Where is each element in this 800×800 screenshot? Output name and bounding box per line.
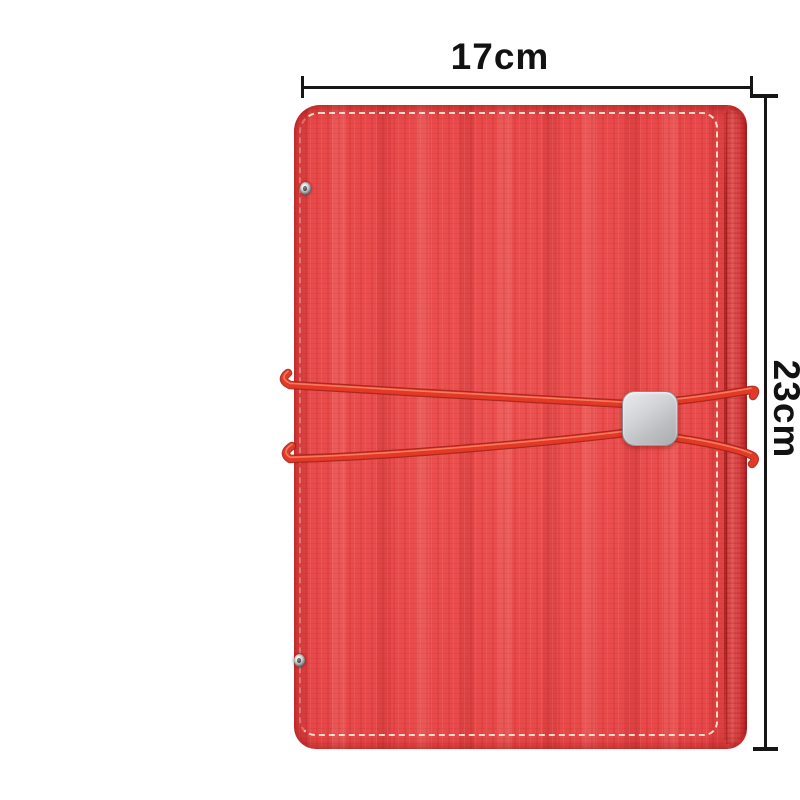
cover-fold-crease (724, 113, 727, 741)
height-dimension-label: 23cm (765, 339, 800, 479)
height-dimension-line (764, 96, 767, 750)
cover-fold-strip (726, 110, 747, 744)
rivet-top (300, 182, 311, 195)
width-dimension-label: 17cm (425, 36, 575, 78)
product-image: 17cm 23cm (0, 0, 800, 800)
width-dimension-left-cap (301, 76, 304, 98)
rivet-bottom (294, 654, 305, 667)
height-dimension-bottom-cap (753, 747, 778, 751)
width-dimension-line (302, 86, 752, 89)
height-dimension-top-cap (753, 94, 778, 98)
band-buckle (622, 391, 678, 446)
notebook-cover (294, 105, 747, 749)
